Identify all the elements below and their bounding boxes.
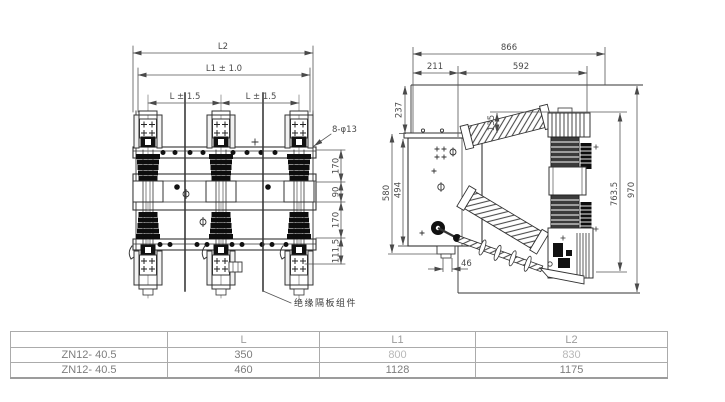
barrier-label: 绝缘隔板组件 — [294, 297, 357, 309]
dim-label-494: 494 — [394, 182, 404, 198]
upper-insulator-arm — [460, 104, 553, 149]
dim-label-580: 580 — [382, 185, 392, 201]
dim-label-970: 970 — [627, 182, 637, 198]
cell-l1: 1128 — [320, 363, 476, 379]
hole-note-label: 8-φ13 — [332, 125, 357, 135]
cell-l1: 800 — [320, 348, 476, 363]
drawing-canvas: L2 L1 ± 1.0 L ± 1.5 L ± 1.5 170 90 170 1… — [0, 0, 725, 330]
dim-label-170-bottom: 170 — [332, 212, 342, 228]
side-view: 866 211 592 237 135 580 494 46 763.5 970 — [382, 43, 643, 293]
dim-label-111-5: 111.5 — [332, 239, 342, 263]
table-header-row: L L1 L2 — [11, 332, 668, 348]
header-l1: L1 — [320, 332, 476, 348]
cell-model: ZN12- 40.5 — [11, 363, 168, 379]
cell-model: ZN12- 40.5 — [11, 348, 168, 363]
dim-label-237: 237 — [395, 102, 405, 118]
technical-drawing-page: L2 L1 ± 1.0 L ± 1.5 L ± 1.5 170 90 170 1… — [0, 0, 725, 402]
front-view: L2 L1 ± 1.0 L ± 1.5 L ± 1.5 170 90 170 1… — [129, 42, 357, 309]
header-l2: L2 — [476, 332, 668, 348]
dimension-table-wrapper: L L1 L2 ZN12- 40.5 350 800 830 ZN12- 40.… — [10, 331, 667, 379]
table-row: ZN12- 40.5 460 1128 1175 — [11, 363, 668, 379]
dim-label-90: 90 — [332, 187, 342, 198]
dim-label-l1: L1 ± 1.0 — [206, 64, 242, 74]
header-model — [11, 332, 168, 348]
dim-label-170-top: 170 — [332, 158, 342, 174]
cell-l: 350 — [168, 348, 320, 363]
pole-stack-side — [540, 108, 599, 284]
cell-l2: 830 — [476, 348, 668, 363]
dim-label-763-5: 763.5 — [610, 182, 620, 206]
cell-l2: 1175 — [476, 363, 668, 379]
dim-label-46: 46 — [461, 259, 472, 269]
dim-label-866: 866 — [501, 43, 517, 53]
dim-label-l-left: L ± 1.5 — [170, 92, 201, 102]
header-l: L — [168, 332, 320, 348]
dimension-table: L L1 L2 ZN12- 40.5 350 800 830 ZN12- 40.… — [10, 331, 668, 379]
dim-label-592: 592 — [513, 62, 529, 72]
dim-label-211: 211 — [427, 62, 443, 72]
pole-right — [280, 95, 314, 298]
dim-label-135: 135 — [487, 115, 497, 131]
pole-left — [129, 95, 163, 298]
cell-l: 460 — [168, 363, 320, 379]
dim-label-l2: L2 — [218, 42, 228, 52]
dim-label-l-right: L ± 1.5 — [246, 92, 277, 102]
table-row: ZN12- 40.5 350 800 830 — [11, 348, 668, 363]
